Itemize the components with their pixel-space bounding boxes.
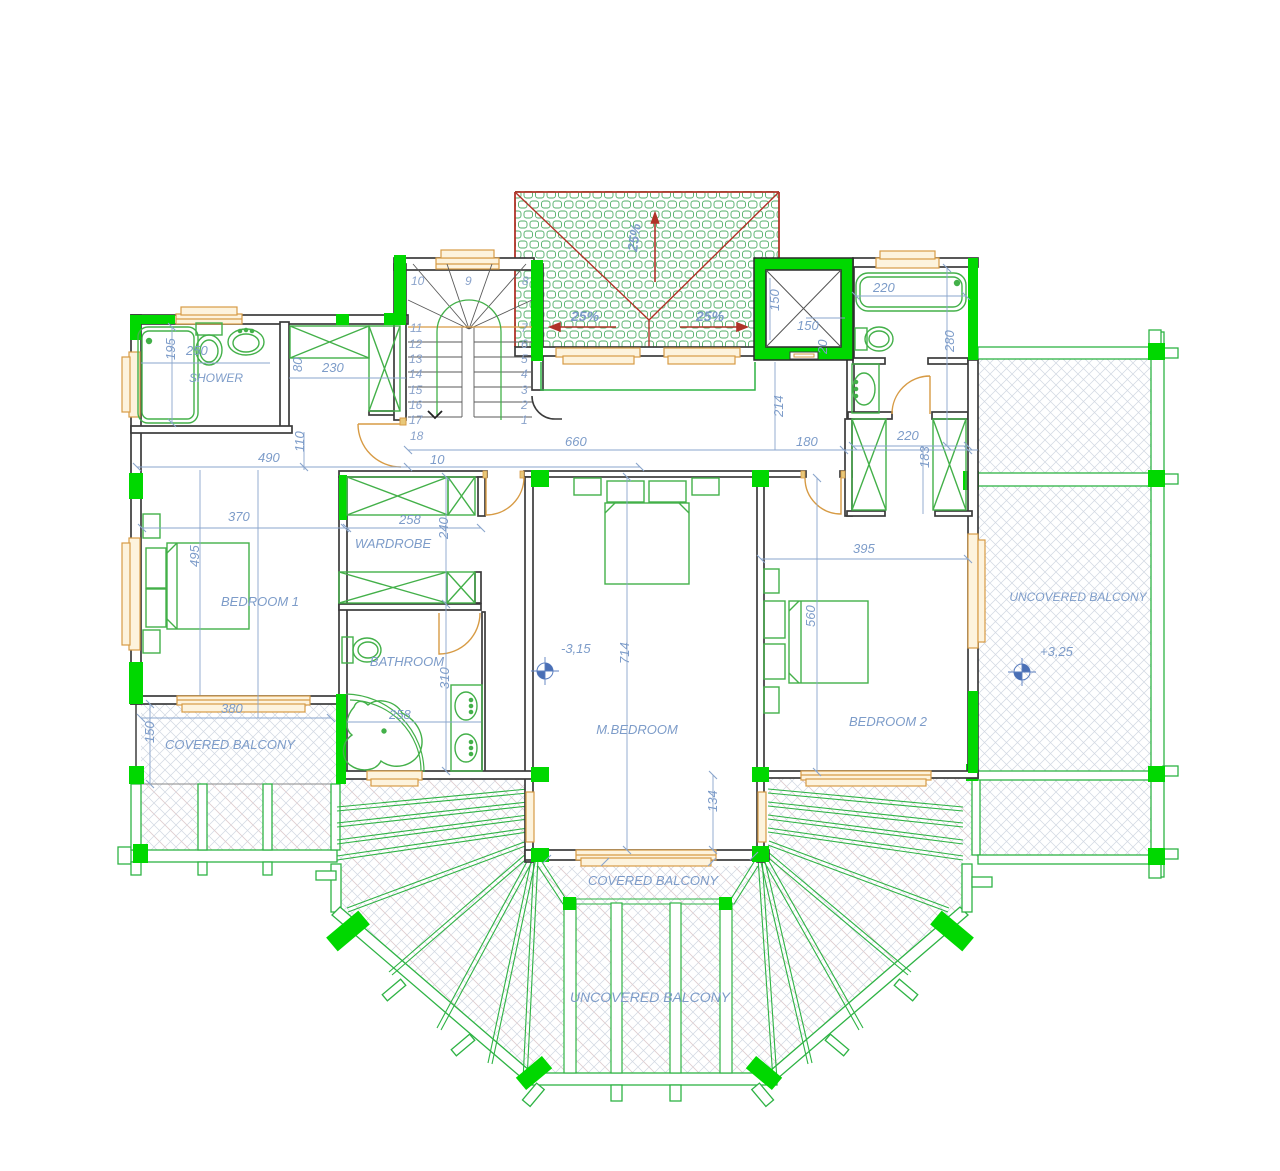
- svg-text:COVERED BALCONY: COVERED BALCONY: [165, 737, 296, 752]
- svg-text:490: 490: [258, 450, 280, 465]
- svg-text:5: 5: [521, 352, 528, 366]
- svg-text:370: 370: [228, 509, 250, 524]
- svg-text:230: 230: [321, 360, 344, 375]
- svg-text:BEDROOM 1: BEDROOM 1: [221, 594, 299, 609]
- svg-text:495: 495: [187, 545, 202, 567]
- svg-text:18: 18: [410, 429, 424, 443]
- svg-text:17: 17: [409, 413, 424, 427]
- svg-text:UNCOVERED BALCONY: UNCOVERED BALCONY: [1009, 590, 1147, 604]
- svg-text:134: 134: [705, 790, 720, 812]
- svg-text:25%: 25%: [695, 308, 725, 324]
- svg-text:183: 183: [917, 446, 932, 468]
- svg-text:15: 15: [409, 383, 423, 397]
- svg-text:6: 6: [521, 337, 528, 351]
- svg-text:11: 11: [410, 321, 422, 335]
- svg-text:310: 310: [437, 667, 452, 689]
- svg-text:2: 2: [520, 398, 528, 412]
- svg-text:660: 660: [565, 434, 587, 449]
- svg-text:395: 395: [853, 541, 875, 556]
- svg-text:250: 250: [185, 343, 208, 358]
- svg-text:714: 714: [617, 642, 632, 664]
- svg-text:240: 240: [436, 517, 451, 540]
- svg-text:SHOWER: SHOWER: [189, 371, 243, 385]
- svg-text:150: 150: [142, 721, 157, 743]
- svg-text:1: 1: [521, 413, 528, 427]
- svg-text:9: 9: [465, 274, 472, 288]
- svg-text:16: 16: [409, 398, 423, 412]
- svg-text:258: 258: [398, 512, 421, 527]
- svg-text:380: 380: [221, 701, 243, 716]
- svg-text:214: 214: [771, 395, 786, 418]
- svg-text:14: 14: [409, 367, 423, 381]
- svg-text:25%: 25%: [570, 308, 600, 324]
- svg-text:220: 220: [896, 428, 919, 443]
- svg-text:150: 150: [767, 289, 782, 311]
- svg-text:COVERED BALCONY: COVERED BALCONY: [588, 873, 719, 888]
- svg-text:13: 13: [409, 352, 423, 366]
- svg-text:560: 560: [803, 605, 818, 627]
- svg-text:+3,25: +3,25: [1040, 644, 1074, 659]
- svg-text:220: 220: [872, 280, 895, 295]
- svg-text:12: 12: [409, 337, 423, 351]
- svg-text:280: 280: [942, 330, 957, 353]
- svg-text:BEDROOM 2: BEDROOM 2: [849, 714, 928, 729]
- svg-text:3: 3: [521, 383, 528, 397]
- svg-text:UNCOVERED BALCONY: UNCOVERED BALCONY: [570, 989, 732, 1005]
- svg-text:10: 10: [411, 274, 425, 288]
- svg-text:20: 20: [815, 339, 830, 355]
- svg-text:M.BEDROOM: M.BEDROOM: [596, 722, 678, 737]
- svg-text:-3,15: -3,15: [561, 641, 591, 656]
- svg-text:10: 10: [430, 452, 445, 467]
- svg-text:WARDROBE: WARDROBE: [355, 536, 432, 551]
- svg-text:258: 258: [388, 707, 411, 722]
- svg-text:8: 8: [522, 274, 529, 288]
- svg-text:4: 4: [521, 367, 528, 381]
- svg-text:180: 180: [796, 434, 818, 449]
- svg-text:110: 110: [292, 431, 307, 452]
- svg-text:80: 80: [290, 357, 305, 372]
- svg-text:195: 195: [163, 338, 178, 360]
- svg-text:150: 150: [797, 318, 819, 333]
- svg-text:BATHROOM: BATHROOM: [370, 654, 444, 669]
